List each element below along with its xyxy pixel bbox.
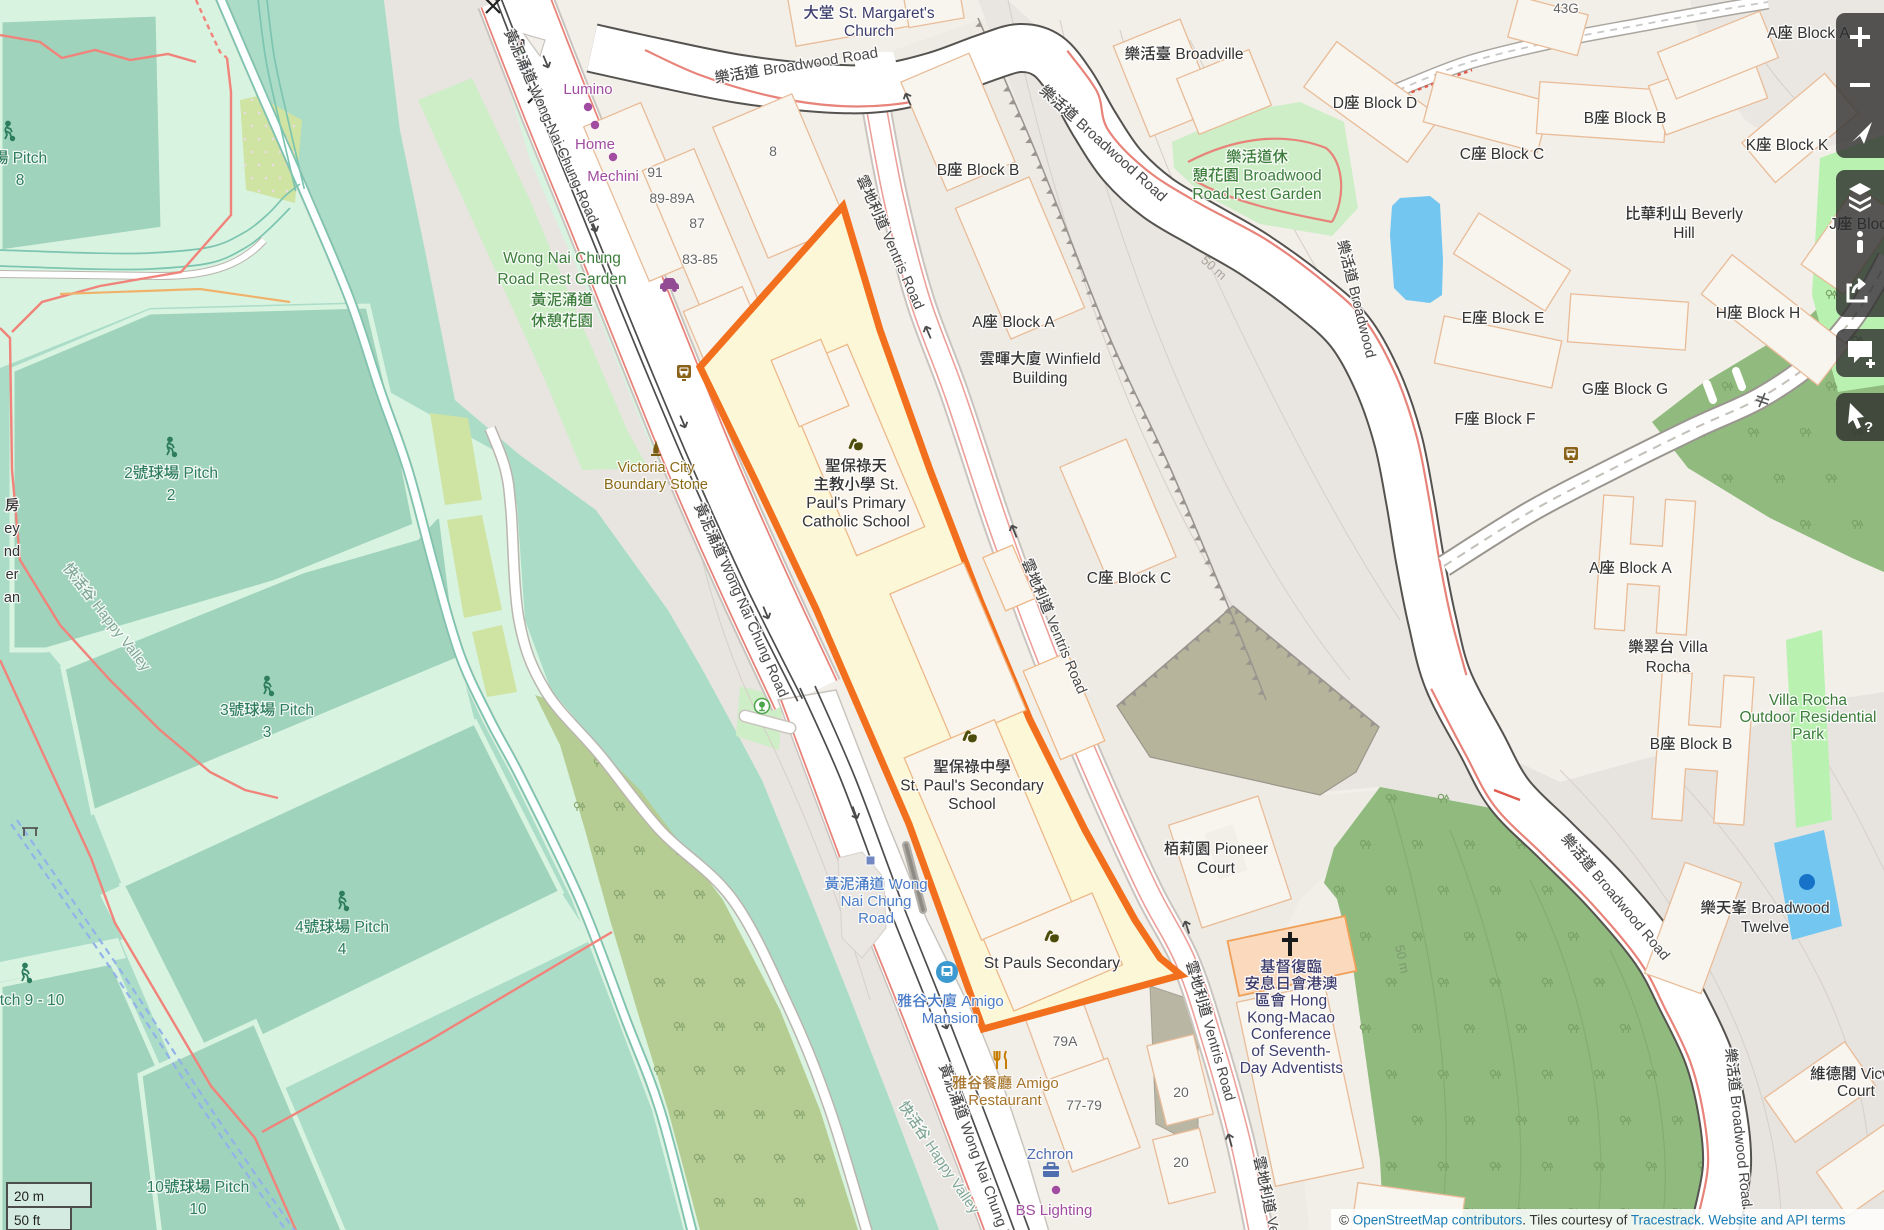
svg-text:ey: ey bbox=[4, 521, 20, 537]
svg-text:Ve: Ve bbox=[1262, 1212, 1282, 1230]
svg-text:Court: Court bbox=[1197, 860, 1236, 877]
svg-text:Pioneer: Pioneer bbox=[1210, 841, 1268, 858]
svg-text:Rocha: Rocha bbox=[1646, 659, 1691, 676]
svg-text:Hong: Hong bbox=[1286, 993, 1327, 1010]
svg-text:J: J bbox=[1829, 216, 1837, 233]
svg-text:St Pauls Secondary: St Pauls Secondary bbox=[984, 955, 1120, 972]
svg-text:Building: Building bbox=[1012, 370, 1067, 387]
svg-text:83-85: 83-85 bbox=[682, 251, 718, 267]
svg-text:Pitch: Pitch bbox=[8, 150, 47, 167]
svg-text:St.: St. bbox=[875, 477, 898, 494]
svg-text:Zchron: Zchron bbox=[1027, 1146, 1074, 1163]
svg-text:4: 4 bbox=[295, 919, 304, 936]
svg-text:Pitch: Pitch bbox=[275, 702, 314, 719]
svg-text:Paul's Primary: Paul's Primary bbox=[806, 495, 906, 512]
svg-text:Block H: Block H bbox=[1743, 305, 1801, 322]
svg-text:20 m: 20 m bbox=[14, 1189, 44, 1204]
svg-text:A: A bbox=[1767, 25, 1778, 42]
svg-text:Block K: Block K bbox=[1772, 137, 1830, 154]
svg-text:Victoria City: Victoria City bbox=[618, 460, 696, 476]
svg-text:Vicwo: Vicwo bbox=[1857, 1066, 1884, 1083]
svg-text:Wong Nai Chung: Wong Nai Chung bbox=[503, 250, 621, 267]
svg-text:Block B: Block B bbox=[1676, 736, 1733, 753]
svg-text:tch 9 - 10: tch 9 - 10 bbox=[0, 992, 65, 1009]
svg-text:BS Lighting: BS Lighting bbox=[1016, 1202, 1093, 1219]
svg-text:C: C bbox=[1087, 570, 1098, 587]
svg-text:Winfield: Winfield bbox=[1041, 351, 1100, 368]
svg-text:of Seventh-: of Seventh- bbox=[1251, 1043, 1330, 1060]
svg-text:Broadwood: Broadwood bbox=[1239, 168, 1322, 185]
svg-text:4: 4 bbox=[338, 941, 347, 958]
svg-text:an: an bbox=[4, 590, 20, 606]
svg-text:Park: Park bbox=[1792, 726, 1824, 743]
svg-text:Wong: Wong bbox=[885, 876, 928, 893]
svg-text:H: H bbox=[1716, 305, 1727, 322]
svg-text:Boundary Stone: Boundary Stone bbox=[604, 477, 708, 493]
svg-text:Pitch: Pitch bbox=[350, 919, 389, 936]
svg-text:Hill: Hill bbox=[1673, 225, 1695, 242]
svg-text:A: A bbox=[1589, 560, 1600, 577]
svg-text:Church: Church bbox=[844, 23, 894, 40]
svg-text:Block F: Block F bbox=[1480, 411, 1536, 428]
svg-text:2: 2 bbox=[124, 465, 133, 482]
svg-text:Mansion: Mansion bbox=[922, 1010, 979, 1027]
svg-text:Broadwood: Broadwood bbox=[1747, 900, 1830, 917]
svg-text:Conference: Conference bbox=[1251, 1026, 1331, 1043]
svg-text:89-89A: 89-89A bbox=[649, 190, 695, 206]
svg-text:Road: Road bbox=[858, 910, 894, 927]
svg-text:Nai Chung: Nai Chung bbox=[841, 893, 912, 910]
svg-text:91: 91 bbox=[647, 164, 663, 180]
svg-text:er: er bbox=[6, 567, 19, 583]
svg-text:Day Adventists: Day Adventists bbox=[1240, 1060, 1344, 1077]
svg-text:2: 2 bbox=[167, 487, 176, 504]
svg-text:B: B bbox=[1650, 736, 1660, 753]
svg-text:Block A: Block A bbox=[1615, 560, 1673, 577]
svg-text:Block E: Block E bbox=[1488, 310, 1545, 327]
svg-text:E: E bbox=[1462, 310, 1472, 327]
svg-text:Block B: Block B bbox=[1610, 110, 1667, 127]
svg-text:?: ? bbox=[1864, 419, 1873, 436]
svg-text:F: F bbox=[1455, 411, 1464, 428]
svg-text:B: B bbox=[937, 162, 947, 179]
svg-text:Block C: Block C bbox=[1487, 146, 1545, 163]
svg-text:Amigo: Amigo bbox=[957, 993, 1004, 1010]
svg-text:10: 10 bbox=[147, 1179, 165, 1196]
svg-text:8: 8 bbox=[769, 143, 777, 159]
svg-text:20: 20 bbox=[1173, 1154, 1189, 1170]
svg-text:© OpenStreetMap contributors.: © OpenStreetMap contributors. Tiles cour… bbox=[1339, 1213, 1846, 1228]
svg-text:Block A: Block A bbox=[998, 314, 1056, 331]
svg-text:Road Rest Garden: Road Rest Garden bbox=[1192, 186, 1321, 203]
svg-text:D: D bbox=[1333, 95, 1344, 112]
svg-text:School: School bbox=[948, 796, 995, 813]
svg-text:8: 8 bbox=[16, 172, 25, 189]
svg-text:G: G bbox=[1582, 381, 1594, 398]
svg-text:43G: 43G bbox=[1553, 1, 1579, 16]
svg-text:Villa Rocha: Villa Rocha bbox=[1769, 692, 1848, 709]
svg-text:C: C bbox=[1460, 146, 1471, 163]
svg-text:Amigo: Amigo bbox=[1012, 1075, 1059, 1092]
svg-text:Broadville: Broadville bbox=[1171, 46, 1243, 63]
svg-text:87: 87 bbox=[689, 215, 705, 231]
svg-text:Home: Home bbox=[575, 136, 615, 153]
svg-text:Villa: Villa bbox=[1675, 639, 1709, 656]
svg-text:10: 10 bbox=[189, 1201, 207, 1218]
svg-text:Kong-Macao: Kong-Macao bbox=[1247, 1009, 1335, 1026]
svg-text:B: B bbox=[1584, 110, 1594, 127]
svg-text:St. Paul's Secondary: St. Paul's Secondary bbox=[900, 778, 1044, 795]
svg-text:20: 20 bbox=[1173, 1084, 1189, 1100]
svg-text:St. Margaret's: St. Margaret's bbox=[834, 5, 935, 22]
svg-text:Twelve: Twelve bbox=[1741, 919, 1789, 936]
svg-text:77-79: 77-79 bbox=[1066, 1097, 1102, 1113]
svg-text:Pitch: Pitch bbox=[179, 465, 218, 482]
svg-text:Court: Court bbox=[1837, 1083, 1876, 1100]
svg-text:79A: 79A bbox=[1053, 1033, 1079, 1049]
svg-text:A: A bbox=[972, 314, 983, 331]
svg-text:50 ft: 50 ft bbox=[14, 1213, 41, 1228]
svg-text:Block G: Block G bbox=[1610, 381, 1669, 398]
svg-text:3: 3 bbox=[220, 702, 229, 719]
svg-text:Lumino: Lumino bbox=[563, 81, 612, 98]
svg-text:Beverly: Beverly bbox=[1687, 206, 1743, 223]
svg-text:Outdoor Residential: Outdoor Residential bbox=[1740, 709, 1877, 726]
svg-text:Pitch: Pitch bbox=[211, 1179, 250, 1196]
svg-text:Catholic School: Catholic School bbox=[802, 514, 910, 531]
svg-text:K: K bbox=[1746, 137, 1757, 154]
svg-text:nd: nd bbox=[4, 544, 20, 560]
svg-text:Restaurant: Restaurant bbox=[968, 1092, 1042, 1109]
svg-text:Block C: Block C bbox=[1114, 570, 1172, 587]
svg-text:Mechini: Mechini bbox=[587, 168, 639, 185]
svg-text:3: 3 bbox=[263, 724, 272, 741]
svg-text:Block D: Block D bbox=[1360, 95, 1418, 112]
svg-text:Road Rest Garden: Road Rest Garden bbox=[497, 271, 626, 288]
svg-text:Block B: Block B bbox=[963, 162, 1020, 179]
